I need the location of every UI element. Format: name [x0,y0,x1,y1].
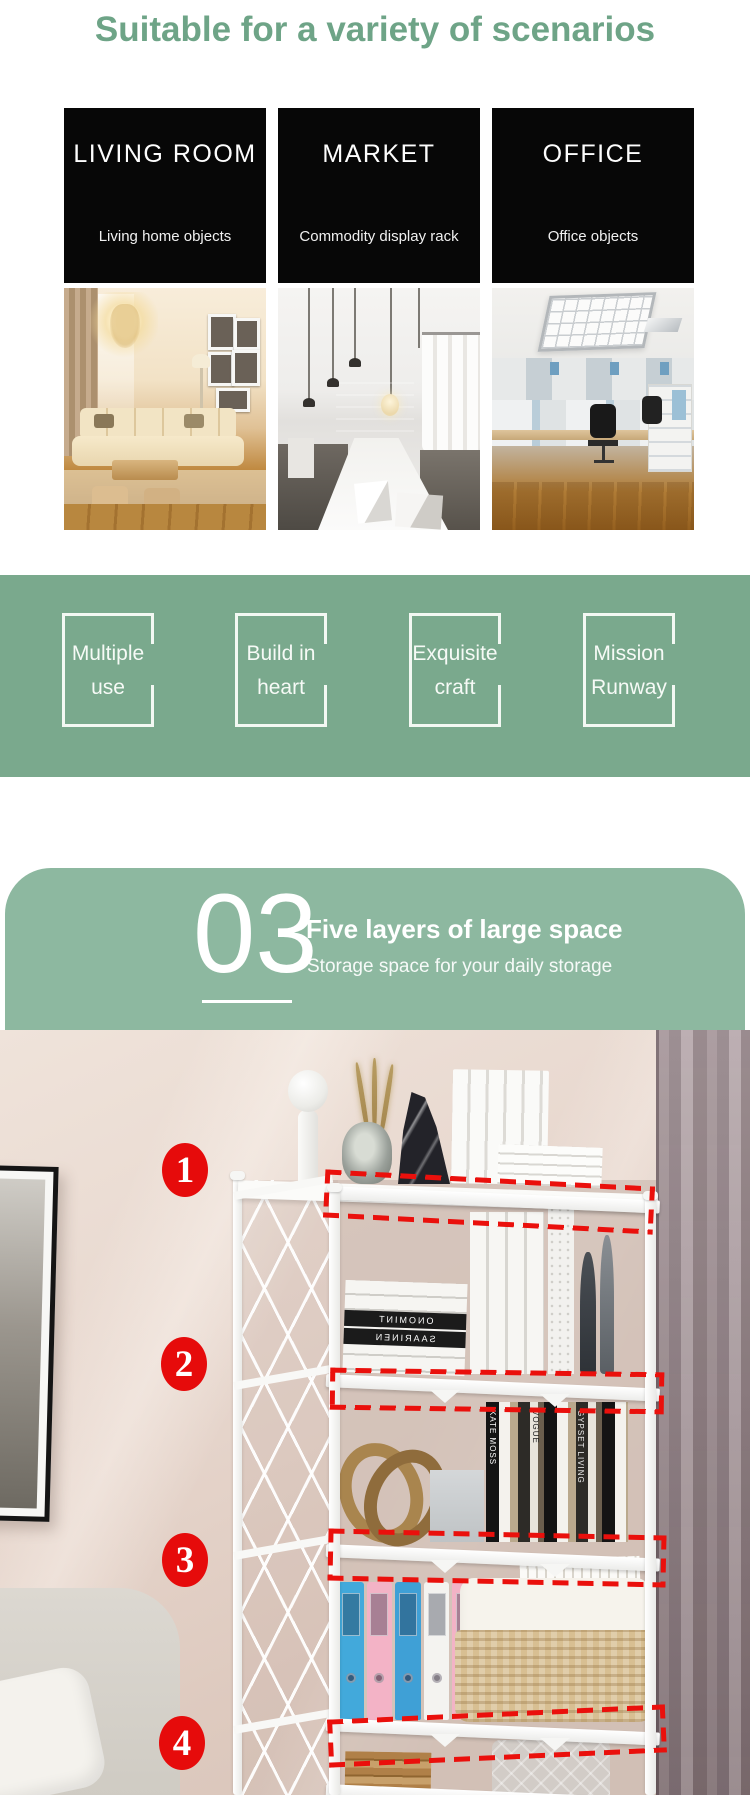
dark-vase [580,1252,596,1374]
wall-frame [208,352,234,386]
pendant-lamp [303,398,315,407]
display-wall [336,380,414,432]
highlight-box-2 [330,1368,665,1415]
section-number-underline [202,1000,292,1003]
binder [395,1582,421,1720]
scenario-subtitle: Living home objects [64,228,266,245]
shelf-post [329,1190,340,1795]
wall-frame [232,350,260,386]
scenario-title: LIVING ROOM [64,140,266,169]
display-stand [288,438,314,478]
magazine-spine: KATE MOSS [488,1410,497,1465]
section-subtitle: Storage space for your daily storage [307,956,612,978]
lamp-cord [332,288,334,380]
feature-line: heart [257,677,305,698]
file-bin [672,390,686,420]
marker-4: 4 [159,1716,205,1770]
wood-floor [492,482,694,530]
office-photo [492,288,694,530]
chandelier [110,304,140,348]
wood-floor [64,504,266,530]
curtain [656,1030,750,1795]
framed-photo [0,1178,45,1508]
scenario-panel-living-room: LIVING ROOM Living home objects [64,108,266,283]
sofa-pillow [184,414,204,428]
feature-line: craft [435,677,476,698]
dash-edge [327,1528,333,1580]
tall-books [470,1212,544,1374]
marker-3: 3 [162,1533,208,1587]
scenario-title: OFFICE [492,140,694,169]
pendant-lamp [349,358,361,367]
binder [367,1582,393,1720]
wall-poster [610,362,619,375]
feature-line: Multiple [72,643,144,664]
scenario-panel-office: OFFICE Office objects [492,108,694,283]
wall-poster [660,362,669,375]
floor-lamp-pole [200,368,203,412]
feature-line: use [91,677,125,698]
ceiling-light [644,318,683,332]
magazine-spine: VOGUE [531,1410,540,1444]
book-spine: ONOMINT [344,1310,466,1330]
shelf-post [233,1178,242,1795]
highlight-box-3 [327,1528,666,1587]
feature-box-mission-runway: Mission Runway [583,613,675,727]
book-spine: SAARINEN [343,1328,465,1348]
wall-frame [234,318,260,350]
binder [424,1582,450,1720]
feature-box-multiple-use: Multiple use [62,613,154,727]
binder [338,1582,364,1720]
dash-edge [327,1719,334,1767]
marker-1: 1 [162,1143,208,1197]
shelf-photo: ONOMINT SAARINEN KATE MOSS VOGUE GYPSET … [0,1030,750,1795]
pendant-lamp-lit [381,394,399,416]
feature-line: Build in [247,643,316,664]
lamp-cord [354,288,356,360]
section-number: 03 [193,878,318,990]
chair-base [594,460,614,463]
feature-box-exquisite-craft: Exquisite craft [409,613,501,727]
lamp-cord [308,288,310,400]
picture-frame [0,1165,59,1522]
ceiling-light-panel [538,292,657,352]
scenario-subtitle: Office objects [492,228,694,245]
page-title: Suitable for a variety of scenarios [0,10,750,50]
feature-box-build-in-heart: Build in heart [235,613,327,727]
feature-line: Mission [593,643,664,664]
wall-poster [550,362,559,375]
dark-vase [600,1235,614,1374]
pegboard-divider [548,1206,574,1374]
wall-frame [208,314,236,350]
magazine-spine: GYPSET LIVING [576,1410,585,1484]
lamp-cord [418,288,420,348]
book-stack: ONOMINT SAARINEN [342,1280,467,1376]
post-cap [230,1171,245,1180]
office-chair [590,404,616,438]
dash-edge [323,1169,331,1217]
section-title: Five layers of large space [306,914,623,945]
product-detail-page: Suitable for a variety of scenarios LIVI… [0,0,750,1795]
display-cube [395,492,443,529]
feature-band: Multiple use Build in heart Exquisite cr… [0,575,750,777]
magazine-row: KATE MOSS VOGUE GYPSET LIVING [486,1402,628,1542]
dash-edge [659,1372,665,1414]
marker-2: 2 [161,1337,207,1391]
living-room-photo [64,288,266,530]
scenario-subtitle: Commodity display rack [278,228,480,245]
pendant-lamp [327,378,339,387]
dash-edge [330,1368,336,1410]
lamp-ball [288,1070,328,1112]
floor-lamp-shade [192,354,210,368]
feature-line: Exquisite [412,643,497,664]
scenario-title: MARKET [278,140,480,169]
section-five-layers: 03 Five layers of large space Storage sp… [5,868,745,1030]
chair-stem [602,446,605,460]
shelf-side-lattice [238,1180,338,1795]
office-chair [642,396,662,424]
feature-line: Runway [591,677,667,698]
clothes-rack [422,332,480,453]
scenario-panel-market: MARKET Commodity display rack [278,108,480,283]
coffee-table [112,460,178,480]
lamp-stem [298,1110,318,1184]
sofa-pillow [94,414,114,428]
market-photo [278,288,480,530]
gold-knot-sculpture [336,1432,432,1542]
display-cube [354,480,392,523]
